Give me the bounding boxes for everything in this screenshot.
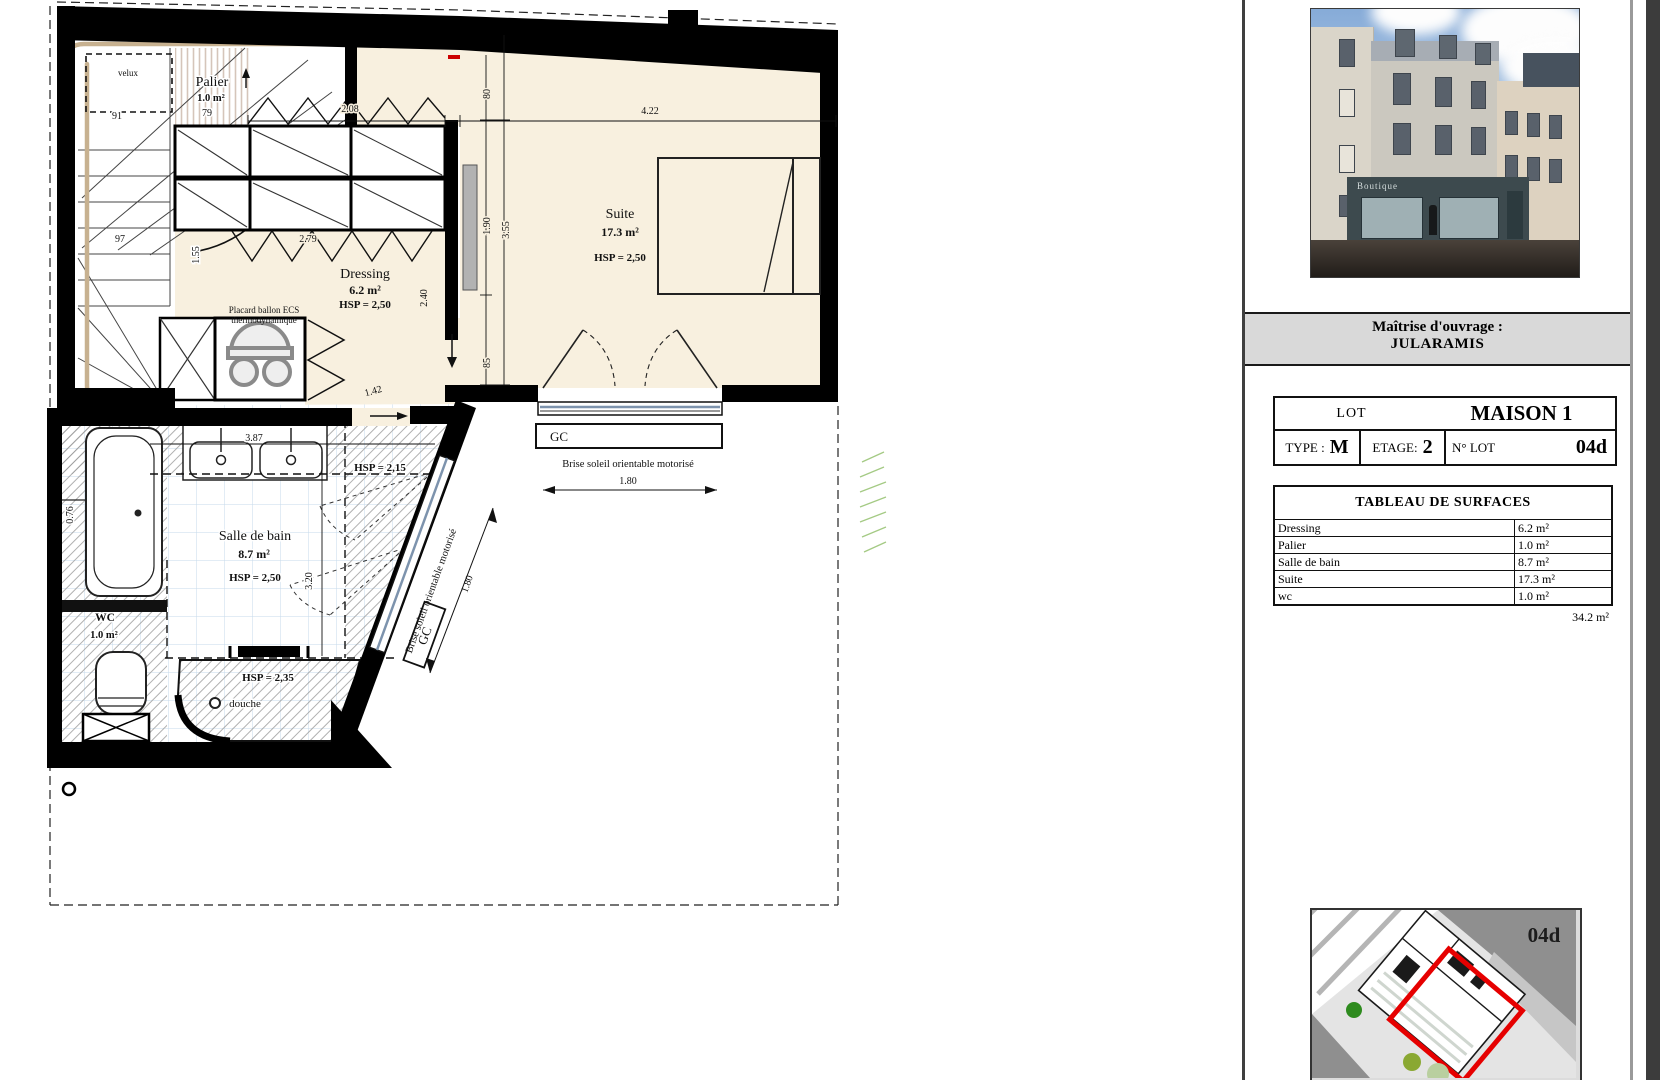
dim-85: 85 [482, 358, 493, 368]
table-row: Suite 17.3 m² [1274, 571, 1612, 588]
site-key-plan: 04d [1310, 908, 1582, 1080]
ouvrage-label: Maîtrise d'ouvrage : [1245, 319, 1630, 336]
floor-plan: velux 91 97 Placard ballon ECS ther [0, 0, 1100, 1080]
placard-label-1: Placard ballon ECS [229, 305, 300, 315]
stair-dim-97: 97 [115, 234, 125, 245]
type-label: TYPE : [1285, 440, 1324, 456]
surface-value: 17.3 m² [1515, 571, 1613, 588]
type-value: M [1330, 436, 1349, 459]
wc-area: 1.0 m² [90, 630, 118, 641]
dim-3-55: 3.55 [501, 221, 512, 239]
ouvrage-name: JULARAMIS [1245, 336, 1630, 353]
siteplan-lot-tag: 04d [1528, 923, 1561, 947]
table-row: Palier 1.0 m² [1274, 537, 1612, 554]
etage-label: ETAGE: [1372, 440, 1417, 456]
dim-2-08: 2.08 [341, 104, 359, 115]
surfaces-title: TABLEAU DE SURFACES [1274, 486, 1612, 520]
lot-row: LOT MAISON 1 [1275, 398, 1615, 431]
suite-area: 17.3 m² [601, 225, 639, 239]
south-brise-label: Brise soleil orientable motorisé [562, 459, 694, 470]
hsp-235-label: HSP = 2,35 [242, 672, 294, 684]
dim-80: 80 [482, 89, 493, 99]
dim-2-40: 2.40 [419, 289, 430, 307]
red-mark [448, 55, 460, 59]
lot-table: LOT MAISON 1 TYPE : M ETAGE: 2 N° LOT 04… [1273, 396, 1617, 466]
bain-hsp: HSP = 2,50 [229, 572, 281, 584]
panel-border-right-thick [1646, 0, 1660, 1080]
dim-1-90: 1.90 [482, 217, 493, 235]
cloud [1371, 8, 1461, 35]
street-figure [1429, 205, 1437, 235]
surface-label: Palier [1274, 537, 1515, 554]
dim-3-20: 3.20 [304, 572, 315, 590]
dressing-area: 6.2 m² [349, 283, 381, 297]
surfaces-table: TABLEAU DE SURFACES Dressing 6.2 m² Pali… [1273, 485, 1613, 606]
velux-label: velux [118, 68, 138, 78]
dim-0-76: 0.76 [65, 506, 76, 524]
diagonal-brise-dim: 1.80 [459, 574, 475, 594]
project-photo: Boutique [1310, 8, 1580, 278]
lot-label: LOT [1275, 406, 1428, 422]
table-row: Salle de bain 8.7 m² [1274, 554, 1612, 571]
surface-value: 1.0 m² [1515, 588, 1613, 606]
dressing-hsp: HSP = 2,50 [339, 299, 391, 311]
placard-label-2: thermodynamique [231, 315, 296, 325]
stair-dim-91: 91 [112, 111, 122, 122]
storefront: Boutique [1347, 177, 1529, 243]
duct [463, 165, 477, 290]
etage-value: 2 [1423, 436, 1433, 459]
suite-hsp: HSP = 2,50 [594, 252, 646, 264]
dim-4-22: 4.22 [641, 106, 659, 117]
palier-area: 1.0 m² [197, 93, 225, 104]
surface-label: Suite [1274, 571, 1515, 588]
surface-value: 6.2 m² [1515, 520, 1613, 537]
south-window: GC Brise soleil orientable motorisé 1.80 [536, 402, 722, 494]
hsp-215-label: HSP = 2,15 [354, 462, 406, 474]
table-row: wc 1.0 m² [1274, 588, 1612, 606]
surface-label: Salle de bain [1274, 554, 1515, 571]
surface-label: wc [1274, 588, 1515, 606]
surface-value: 8.7 m² [1515, 554, 1613, 571]
surface-value: 1.0 m² [1515, 537, 1613, 554]
velux-skylight: velux [86, 54, 172, 112]
dim-2-79: 2.79 [299, 234, 317, 245]
bath-door-arrow [352, 408, 410, 426]
wall-crossbox-left [83, 714, 149, 741]
wall-tub-wc [62, 600, 167, 612]
surfaces-total: 34.2 m² [1273, 610, 1613, 625]
dim-3-87: 3.87 [245, 433, 263, 444]
palier-dim: 79 [202, 108, 212, 119]
storefront-sign: Boutique [1357, 181, 1398, 191]
surface-label: Dressing [1274, 520, 1515, 537]
lot-value: MAISON 1 [1428, 401, 1615, 426]
south-brise-dim: 1.80 [619, 476, 637, 487]
street [1311, 240, 1579, 277]
toilet [96, 652, 146, 714]
title-block-panel: Boutique Maîtrise d'ouvrage : JULARAMIS … [1245, 0, 1630, 1080]
palier-name: Palier [196, 75, 229, 90]
ouvrage-band: Maîtrise d'ouvrage : JULARAMIS [1245, 312, 1630, 366]
table-row: Dressing 6.2 m² [1274, 520, 1612, 537]
south-window-gc-label: GC [550, 429, 568, 444]
douche-label: douche [229, 698, 261, 710]
dim-1-55: 1.55 [191, 246, 202, 264]
suite-name: Suite [606, 207, 635, 222]
wc-name: WC [95, 612, 115, 624]
survey-point [63, 783, 75, 795]
panel-border-right-thin [1630, 0, 1633, 1080]
vegetation-hatch [860, 452, 886, 552]
lot-detail-row: TYPE : M ETAGE: 2 N° LOT 04d [1275, 431, 1615, 464]
nlot-value: 04d [1576, 436, 1607, 459]
drawing-sheet: velux 91 97 Placard ballon ECS ther [0, 0, 1674, 1080]
bain-area: 8.7 m² [238, 547, 270, 561]
bain-name: Salle de bain [219, 529, 291, 544]
dressing-name: Dressing [340, 267, 390, 282]
nlot-label: N° LOT [1452, 440, 1495, 456]
